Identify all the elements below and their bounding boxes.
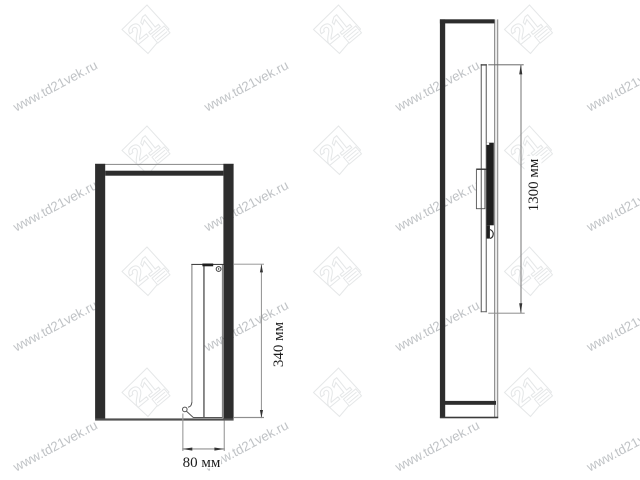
svg-text:80 мм: 80 мм	[183, 455, 221, 471]
svg-text:340 мм: 340 мм	[271, 321, 287, 367]
svg-text:1300 мм: 1300 мм	[526, 158, 542, 211]
